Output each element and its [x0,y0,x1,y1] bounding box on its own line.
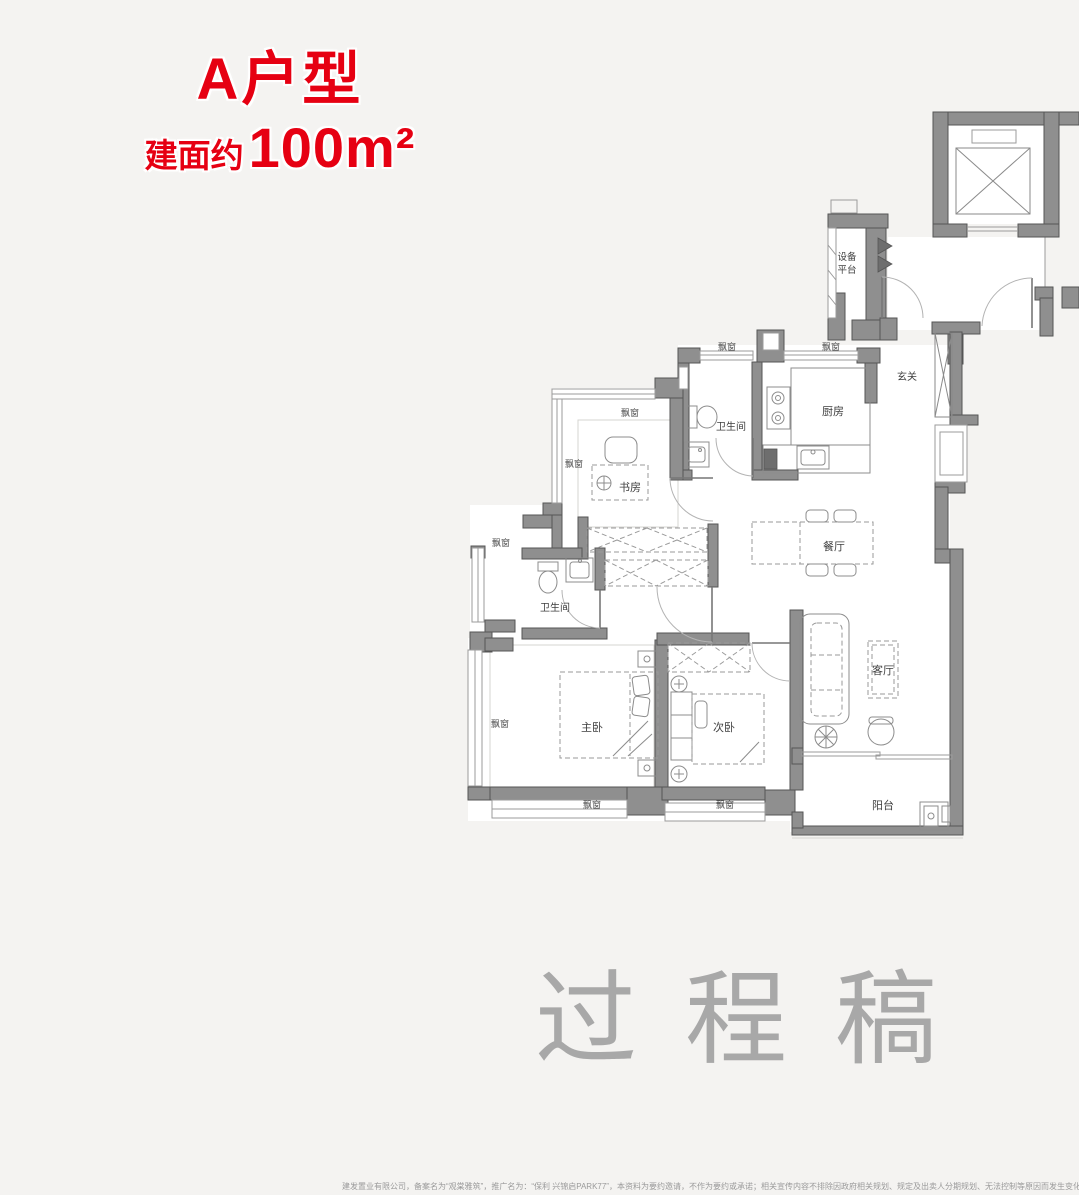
label-bay-window: 飘窗 [718,341,736,352]
label-study: 书房 [619,481,641,494]
label-foyer: 玄关 [897,370,917,383]
label-bath-lower: 卫生间 [540,601,570,614]
label-bay-window: 飘窗 [621,407,639,418]
label-bay-window: 飘窗 [565,458,583,469]
label-balcony: 阳台 [872,798,894,812]
floorplan-page: A户型 建面约 100m² [0,0,1079,1195]
label-master-bedroom: 主卧 [581,721,603,734]
label-kitchen: 厨房 [822,405,844,418]
label-bath-upper: 卫生间 [716,420,746,433]
plant-icon [815,726,837,748]
label-bay-window: 飘窗 [822,341,840,352]
label-bay-window: 飘窗 [491,718,509,729]
label-equipment-1: 设备 [837,251,857,263]
label-second-bedroom: 次卧 [713,720,735,734]
label-dining: 餐厅 [823,539,845,553]
label-bay-window: 飘窗 [716,799,734,810]
label-living: 客厅 [872,663,894,677]
label-bay-window: 飘窗 [492,537,510,548]
legal-disclaimer: 建发置业有限公司，备案名为“观棠雅筑”，推广名为：“保利 兴锦启PARK77”，… [342,1181,1079,1192]
label-bay-window: 飘窗 [583,799,601,810]
label-equipment-2: 平台 [837,264,856,276]
draft-watermark: 过程稿 [535,938,985,1085]
